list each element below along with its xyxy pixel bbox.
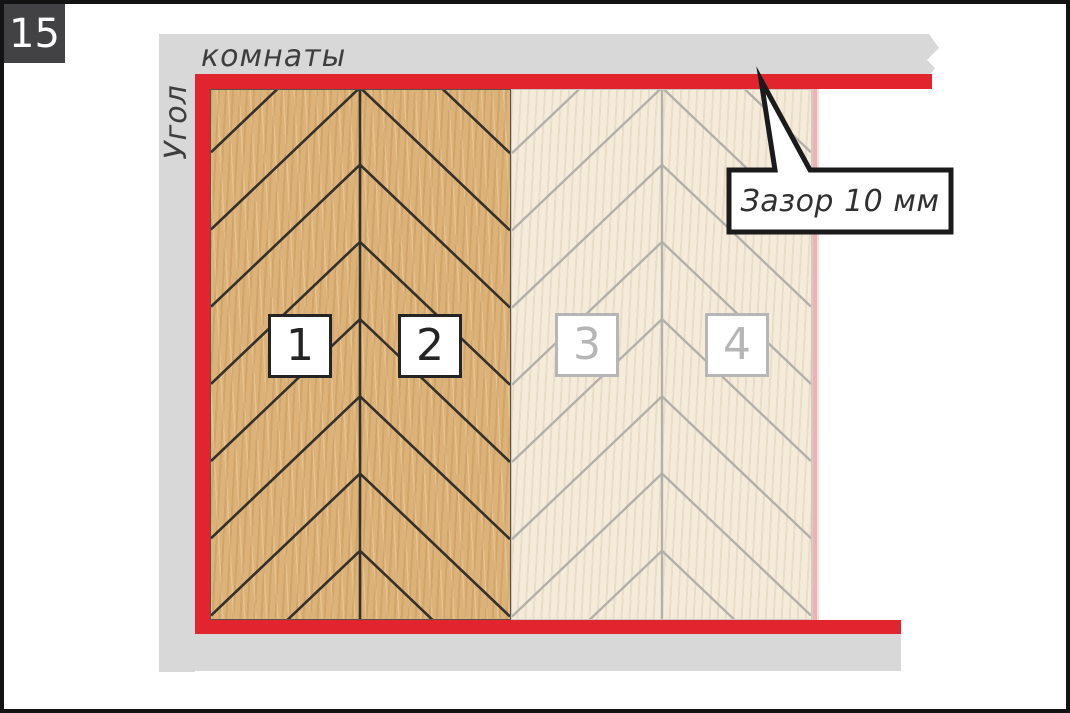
gap-callout-label: Зазор 10 мм (729, 170, 951, 232)
row-number-2: 2 (416, 324, 444, 368)
row-number-tile-2: 2 (398, 314, 462, 378)
row-number-tile-4: 4 (705, 313, 769, 377)
row-number-3: 3 (573, 323, 601, 367)
step-number-badge: 15 (4, 4, 65, 63)
herringbone-pattern-installed (211, 90, 510, 619)
row-number-tile-3: 3 (555, 313, 619, 377)
wall-bottom (159, 634, 901, 671)
row-number-tile-1: 1 (268, 314, 332, 378)
wall-left-label: Угол (162, 84, 192, 160)
figure-15-room-corner-diagram: комнаты Угол 1 2 3 4 Зазор 10 мм 15 (0, 0, 1070, 713)
row-number-4: 4 (723, 323, 751, 367)
row-number-1: 1 (286, 324, 314, 368)
step-number: 15 (9, 14, 60, 54)
expansion-gap-line-left (195, 74, 210, 634)
expansion-gap-line-bottom (195, 620, 901, 634)
wall-left: Угол (159, 34, 195, 672)
wall-top-label: комнаты (201, 42, 346, 72)
flooring-installed-rows (210, 89, 511, 620)
